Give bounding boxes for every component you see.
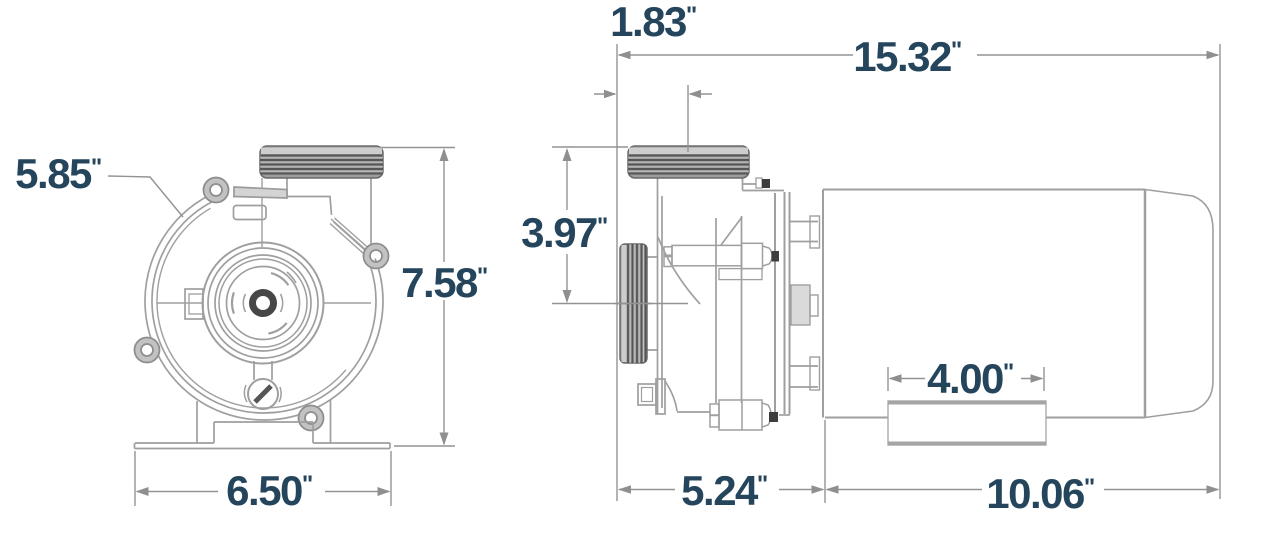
- svg-text:5.24": 5.24": [681, 467, 767, 514]
- svg-text:7.58": 7.58": [401, 259, 487, 306]
- svg-text:6.50": 6.50": [226, 467, 312, 514]
- svg-text:10.06": 10.06": [986, 470, 1094, 517]
- svg-text:5.85": 5.85": [15, 150, 101, 197]
- svg-text:4.00": 4.00": [927, 355, 1013, 402]
- svg-text:3.97": 3.97": [521, 209, 607, 256]
- svg-text:15.32": 15.32": [853, 33, 961, 80]
- svg-text:1.83": 1.83": [610, 0, 696, 45]
